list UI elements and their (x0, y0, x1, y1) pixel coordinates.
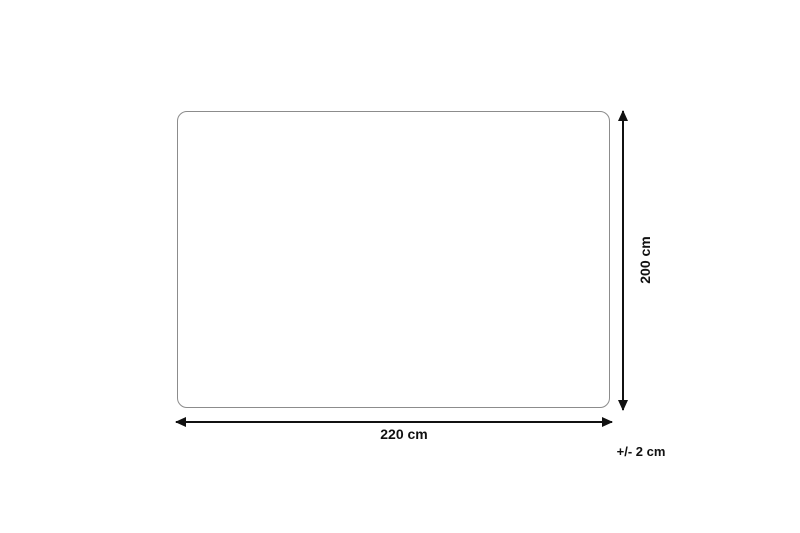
arrowhead-left-icon (175, 417, 186, 427)
height-dimension-arrow-icon (622, 111, 624, 410)
dimension-diagram: 220 cm 200 cm +/- 2 cm (0, 0, 800, 533)
width-dimension-label: 220 cm (196, 426, 612, 442)
product-outline (177, 111, 610, 408)
arrowhead-down-icon (618, 400, 628, 411)
arrowhead-up-icon (618, 110, 628, 121)
width-dimension-arrow-icon (176, 421, 612, 423)
tolerance-label: +/- 2 cm (612, 444, 670, 459)
height-dimension-label: 200 cm (637, 236, 653, 283)
